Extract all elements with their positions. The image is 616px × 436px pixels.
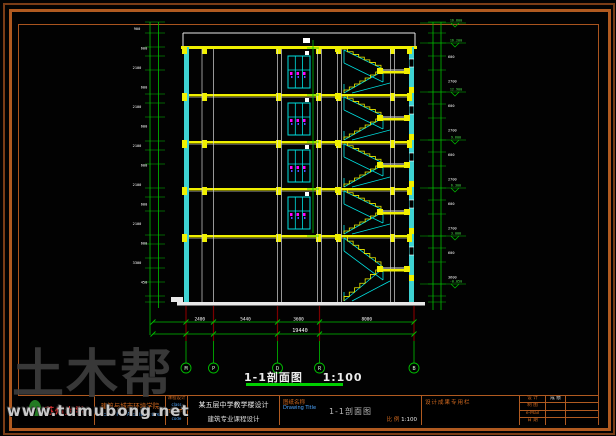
svg-text:8000: 8000 xyxy=(361,317,372,323)
svg-text:6.300: 6.300 xyxy=(451,184,461,188)
signature-row: 设 计 成 绩 xyxy=(520,396,598,403)
project-title-line2: 建筑专业课程设计 xyxy=(188,413,279,423)
sig-mid: 成 绩 xyxy=(546,396,566,402)
sig-mid xyxy=(546,411,566,417)
svg-text:600: 600 xyxy=(448,202,455,206)
svg-text:600: 600 xyxy=(448,153,455,157)
svg-text:600: 600 xyxy=(448,55,455,59)
svg-text:2100: 2100 xyxy=(133,105,142,109)
stairs xyxy=(335,46,410,301)
sig-right xyxy=(566,418,598,425)
svg-text:600: 600 xyxy=(141,47,148,51)
titleblock-signature-grid: 设 计 成 绩 制 图 e-Mail 日 期 xyxy=(520,396,598,425)
signature-row: e-Mail xyxy=(520,411,598,418)
svg-text:2100: 2100 xyxy=(133,66,142,70)
titleblock-project-cell: 某五层中学教学楼设计 建筑专业课程设计 xyxy=(188,396,280,425)
svg-text:3300: 3300 xyxy=(133,261,142,265)
titleblock-drawing-cell: 图纸名称 Drawing Title 1-1剖面图 比 例 1:100 xyxy=(280,396,422,425)
svg-text:2100: 2100 xyxy=(133,222,142,226)
watermark-brand: 土木帮 xyxy=(12,332,174,407)
scale-label: 比 例 xyxy=(387,417,400,423)
svg-text:16.800: 16.800 xyxy=(450,19,462,23)
drawing-scale: 比 例 1:100 xyxy=(387,415,417,423)
sig-label: 设 计 xyxy=(520,396,546,402)
left-dimensions: 9006002100600210060021006002100600210060… xyxy=(133,22,165,335)
sig-label: 日 期 xyxy=(520,418,546,425)
svg-text:-0.050: -0.050 xyxy=(450,280,462,284)
svg-text:P: P xyxy=(212,366,215,372)
sig-mid xyxy=(546,403,566,409)
titleblock-note-cell: 设计成果专用栏 xyxy=(422,396,520,425)
svg-text:600: 600 xyxy=(141,125,148,129)
sig-right xyxy=(566,403,598,409)
sig-right xyxy=(566,396,598,402)
svg-text:600: 600 xyxy=(448,251,455,255)
project-title-line1: 某五层中学教学楼设计 xyxy=(188,400,279,410)
sig-label: 制 图 xyxy=(520,403,546,409)
svg-text:3600: 3600 xyxy=(293,317,304,323)
svg-text:B: B xyxy=(412,366,415,372)
svg-text:600: 600 xyxy=(448,104,455,108)
svg-text:12.900: 12.900 xyxy=(450,88,462,92)
svg-text:2700: 2700 xyxy=(448,129,457,133)
bottom-dimensions: 240054403600800019440 xyxy=(151,306,417,363)
watermark-url: www.tumubong.net xyxy=(7,402,190,420)
svg-text:600: 600 xyxy=(141,86,148,90)
svg-text:2100: 2100 xyxy=(133,183,142,187)
svg-text:600: 600 xyxy=(141,164,148,168)
svg-text:600: 600 xyxy=(141,203,148,207)
svg-text:9.600: 9.600 xyxy=(451,136,461,140)
sig-mid xyxy=(546,418,566,425)
caption-underline xyxy=(246,383,343,386)
scale-value: 1:100 xyxy=(401,417,417,423)
svg-text:450: 450 xyxy=(141,281,148,285)
svg-text:16.200: 16.200 xyxy=(450,39,462,43)
svg-text:2400: 2400 xyxy=(194,317,205,323)
svg-text:2700: 2700 xyxy=(448,80,457,84)
svg-text:2100: 2100 xyxy=(133,144,142,148)
note-label: 设计成果专用栏 xyxy=(425,398,471,406)
svg-text:19440: 19440 xyxy=(292,328,308,334)
svg-text:3.000: 3.000 xyxy=(451,232,461,236)
signature-row: 制 图 xyxy=(520,403,598,410)
window-stack xyxy=(288,51,310,229)
sig-label: e-Mail xyxy=(520,411,546,417)
svg-text:600: 600 xyxy=(141,242,148,246)
svg-text:2700: 2700 xyxy=(448,227,457,231)
sig-right xyxy=(566,411,598,417)
svg-text:5440: 5440 xyxy=(240,317,251,323)
right-dimensions: 6002700600270060027006002700600360016.80… xyxy=(420,19,466,311)
signature-row: 日 期 xyxy=(520,418,598,425)
svg-text:2700: 2700 xyxy=(448,178,457,182)
svg-text:M: M xyxy=(184,366,187,372)
svg-text:900: 900 xyxy=(134,27,141,31)
cad-viewport: 9006002100600210060021006002100600210060… xyxy=(0,0,616,436)
